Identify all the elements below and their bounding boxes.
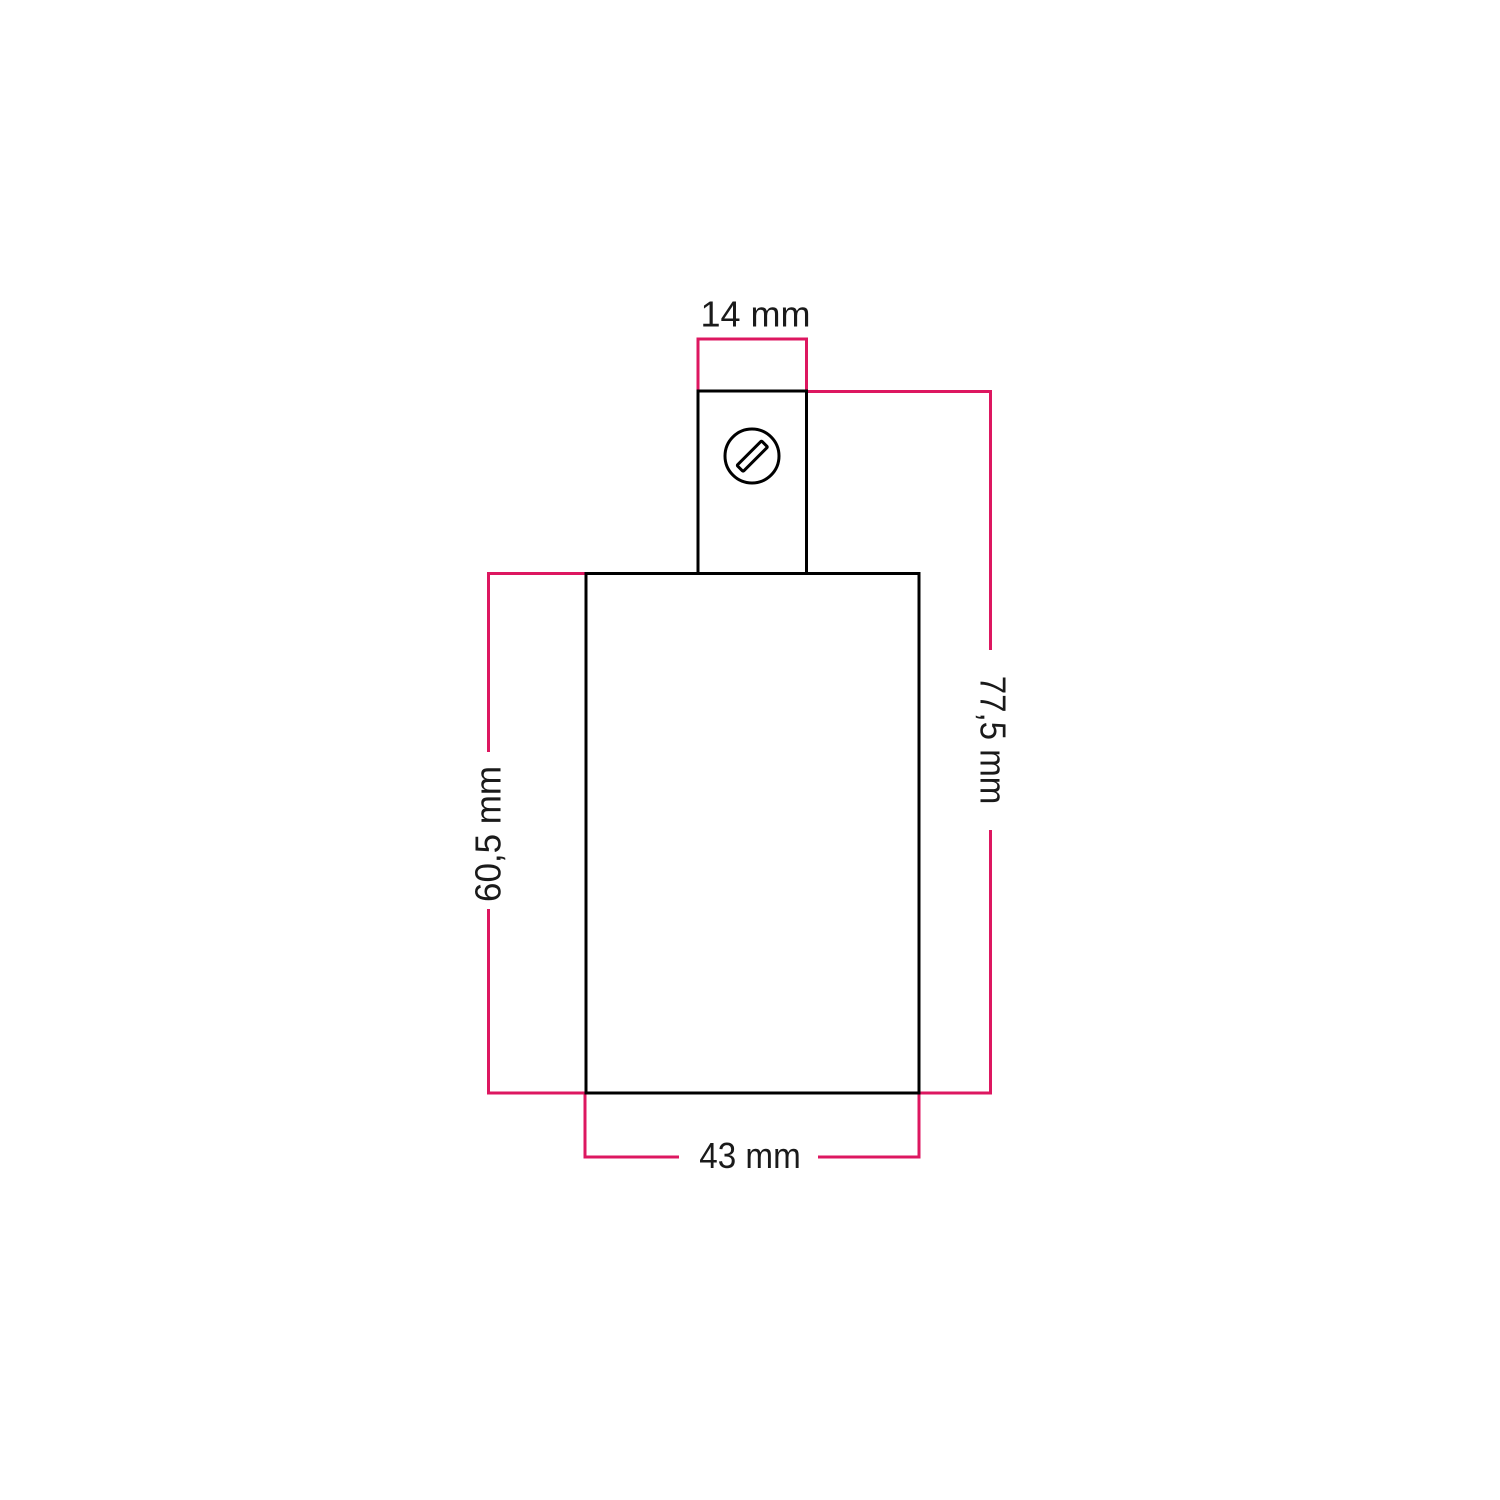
svg-text:43 mm: 43 mm <box>699 1135 801 1176</box>
svg-text:14 mm: 14 mm <box>700 294 810 335</box>
svg-text:77,5 mm: 77,5 mm <box>973 676 1014 805</box>
svg-text:60,5 mm: 60,5 mm <box>468 766 509 902</box>
